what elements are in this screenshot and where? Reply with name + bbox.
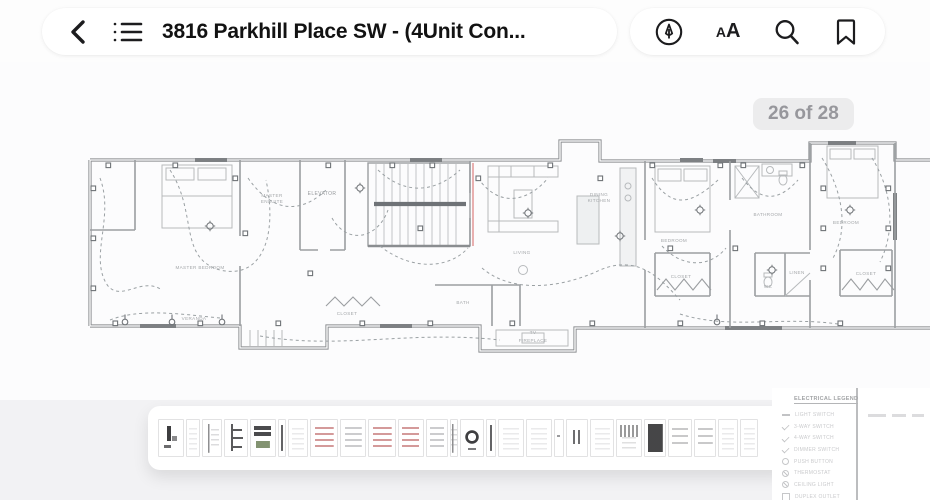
room-label: VERANDA <box>182 316 207 321</box>
legend-symbol-check <box>782 423 790 431</box>
legend-symbol-circle-slash <box>782 481 789 488</box>
books-reader: 3816 Parkhill Place SW - (4Unit Con... A… <box>0 0 930 500</box>
legend-item-label: LIGHT SWITCH <box>795 412 834 418</box>
legend-item: DIMMER SWITCH <box>782 447 839 453</box>
room-label: CLOSET <box>337 311 357 316</box>
page-thumbnail[interactable] <box>644 419 666 457</box>
room-label: CLOSET <box>671 274 691 279</box>
floorplan-drawing: MASTER BEDROOMMASTERENSUITEELEVATORLIVIN… <box>80 118 930 366</box>
room-label: ENSUITE <box>261 199 283 204</box>
appearance-button[interactable]: AA <box>706 10 750 54</box>
page-thumbnail[interactable] <box>486 419 496 457</box>
room-label: DINING <box>590 192 608 197</box>
page-thumbnail[interactable] <box>398 419 424 457</box>
page-thumbnail[interactable] <box>460 419 484 457</box>
search-icon <box>773 18 801 46</box>
page-thumbnail[interactable] <box>590 419 614 457</box>
page-thumbnail[interactable] <box>668 419 692 457</box>
room-label: ELEVATOR <box>308 191 337 197</box>
legend-item-label: DIMMER SWITCH <box>794 447 839 453</box>
page-thumbnail[interactable] <box>740 419 758 457</box>
sheet-legend-panel: ELECTRICAL LEGEND LIGHT SWITCH3-WAY SWIT… <box>772 388 930 500</box>
legend-item: CEILING LIGHT <box>782 481 834 488</box>
page-thumbnail[interactable] <box>526 419 552 457</box>
faint-text-bar <box>868 414 886 417</box>
legend-symbol-circle-slash <box>782 470 789 477</box>
page-thumbnail[interactable] <box>450 419 458 457</box>
room-label: CLOSET <box>856 271 876 276</box>
page-thumbnail[interactable] <box>566 419 588 457</box>
legend-item: THERMOSTAT <box>782 470 831 477</box>
legend-item: PUSH BUTTON <box>782 458 833 465</box>
toolbar-left-pill: 3816 Parkhill Place SW - (4Unit Con... <box>42 8 617 55</box>
page-thumbnail[interactable] <box>616 419 642 457</box>
room-label: BEDROOM <box>661 238 687 243</box>
room-label: BATH <box>456 300 469 305</box>
list-icon <box>113 20 143 44</box>
page-thumbnail[interactable] <box>278 419 286 457</box>
page-thumbnail[interactable] <box>250 419 276 457</box>
legend-symbol-circle <box>782 458 789 465</box>
search-button[interactable] <box>765 10 809 54</box>
legend-item-label: THERMOSTAT <box>794 470 831 476</box>
page-thumbnail[interactable] <box>340 419 366 457</box>
closet-rods <box>326 279 894 306</box>
pen-circle-icon <box>654 17 684 47</box>
interior-walls <box>90 143 895 328</box>
legend-symbol-dash <box>782 414 790 416</box>
page-thumbnail[interactable] <box>288 419 308 457</box>
room-label: MASTER <box>261 193 283 198</box>
legend-item-label: DUPLEX OUTLET <box>795 494 840 500</box>
bookmark-button[interactable] <box>824 10 868 54</box>
room-label: LIVING <box>513 250 530 255</box>
chevron-left-icon <box>67 19 89 45</box>
page-thumbnail[interactable] <box>694 419 716 457</box>
room-label: FIREPLACE <box>519 338 548 343</box>
room-label: MASTER BEDROOM <box>175 265 224 270</box>
room-label: BATHROOM <box>753 212 782 217</box>
page-thumbnail[interactable] <box>426 419 448 457</box>
page-thumbnail[interactable] <box>368 419 396 457</box>
outer-walls <box>90 141 930 351</box>
contents-button[interactable] <box>106 10 150 54</box>
outlet-symbols <box>91 163 891 326</box>
page-thumbnail[interactable] <box>718 419 738 457</box>
legend-item-label: 3-WAY SWITCH <box>794 424 834 430</box>
sheet-border-line <box>856 388 858 500</box>
legend-item: 3-WAY SWITCH <box>782 424 834 430</box>
legend-item-label: CEILING LIGHT <box>794 482 834 488</box>
faint-text-bar <box>912 414 924 417</box>
circuit-wiring <box>100 158 890 341</box>
page-thumbnail[interactable] <box>186 419 200 457</box>
page-thumbnail[interactable] <box>158 419 184 457</box>
wall-cores <box>90 141 930 351</box>
legend-symbol-square <box>782 493 790 500</box>
page-thumbnail[interactable] <box>224 419 248 457</box>
legend-item-label: PUSH BUTTON <box>794 459 833 465</box>
faint-text-bar <box>892 414 906 417</box>
sconce-symbols <box>122 315 720 325</box>
page-thumbnail[interactable] <box>498 419 524 457</box>
legend-item: 4-WAY SWITCH <box>782 435 834 441</box>
room-label: WC <box>764 284 773 289</box>
bookmark-icon <box>835 18 857 46</box>
annotate-button[interactable] <box>647 10 691 54</box>
legend-title: ELECTRICAL LEGEND <box>794 396 858 404</box>
room-label: KITCHEN <box>588 198 611 203</box>
back-button[interactable] <box>56 10 100 54</box>
legend-item-label: 4-WAY SWITCH <box>794 435 834 441</box>
legend-symbol-check <box>782 446 790 454</box>
legend-symbol-check <box>782 434 790 442</box>
room-label: TV <box>530 330 537 335</box>
legend-item: DUPLEX OUTLET <box>782 493 840 500</box>
document-title: 3816 Parkhill Place SW - (4Unit Con... <box>162 20 526 44</box>
page-thumbnail-strip[interactable] <box>148 406 790 470</box>
room-label: LINEN <box>789 270 804 275</box>
room-label: BEDROOM <box>833 220 859 225</box>
page-thumbnail[interactable] <box>202 419 222 457</box>
legend-item: LIGHT SWITCH <box>782 412 834 418</box>
toolbar-right-pill: AA <box>630 8 885 55</box>
page-thumbnail[interactable] <box>554 419 564 457</box>
text-size-icon: AA <box>716 20 741 43</box>
page-thumbnail[interactable] <box>310 419 338 457</box>
